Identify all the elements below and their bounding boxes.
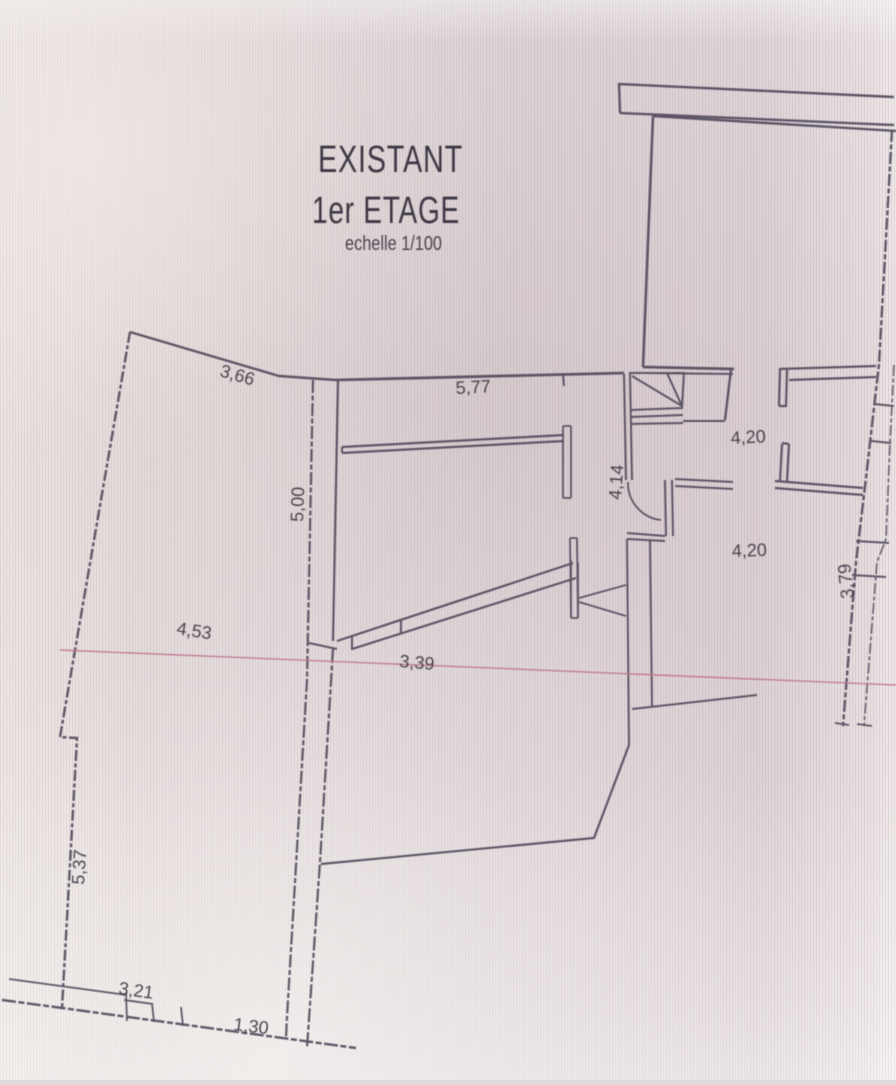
svg-text:4,14: 4,14 [605, 464, 627, 500]
svg-text:1er ETAGE: 1er ETAGE [312, 190, 460, 232]
svg-text:5,00: 5,00 [287, 486, 308, 522]
svg-text:5,77: 5,77 [455, 376, 491, 398]
svg-text:3,39: 3,39 [399, 651, 436, 674]
svg-text:3,79: 3,79 [834, 563, 858, 600]
svg-text:4,20: 4,20 [731, 540, 767, 561]
svg-text:echelle 1/100: echelle 1/100 [345, 233, 442, 255]
svg-text:5,37: 5,37 [68, 849, 90, 885]
svg-text:4,20: 4,20 [730, 426, 766, 448]
svg-text:EXISTANT: EXISTANT [318, 139, 463, 181]
svg-text:1,30: 1,30 [233, 1014, 270, 1038]
